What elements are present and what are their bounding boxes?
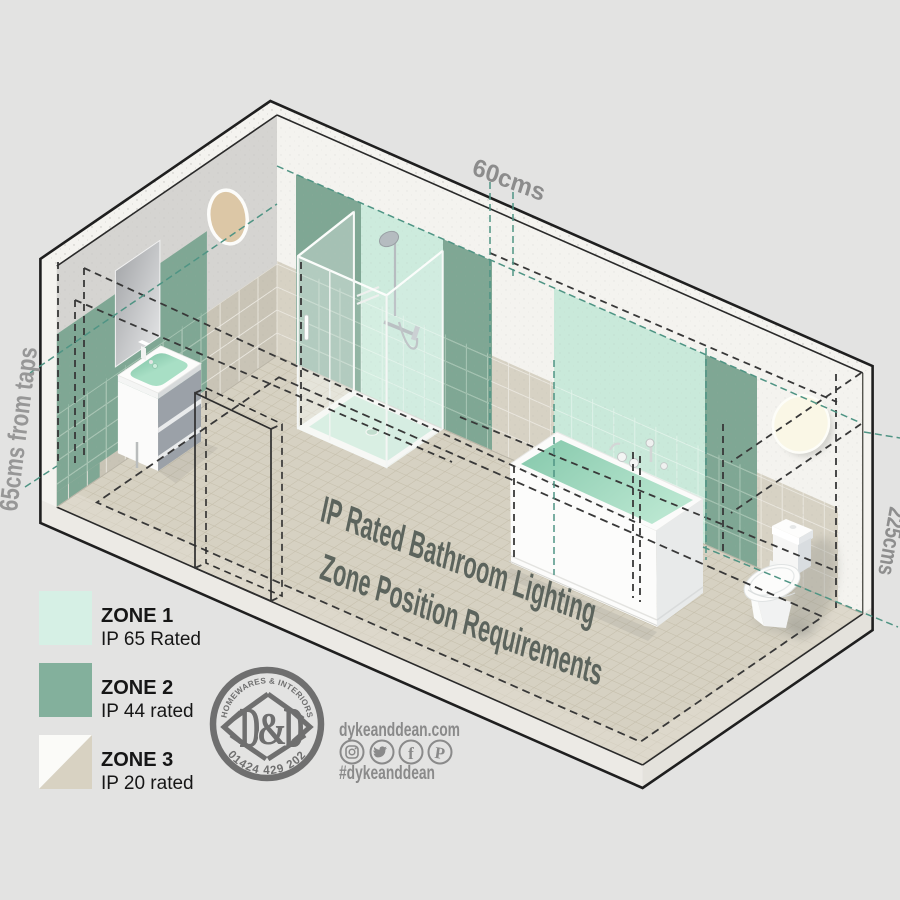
svg-text:ZONE 2: ZONE 2	[101, 677, 173, 699]
svg-text:IP 44 rated: IP 44 rated	[101, 701, 194, 722]
svg-text:f: f	[408, 744, 414, 763]
svg-text:ZONE 3: ZONE 3	[101, 749, 173, 771]
svg-text:IP 65 Rated: IP 65 Rated	[101, 629, 201, 650]
svg-text:IP 20 rated: IP 20 rated	[101, 773, 194, 794]
svg-text:#dykeanddean: #dykeanddean	[339, 763, 435, 784]
svg-text:dykeanddean.com: dykeanddean.com	[339, 720, 460, 741]
svg-text:ZONE 1: ZONE 1	[101, 605, 173, 627]
svg-text:&: &	[257, 703, 287, 754]
